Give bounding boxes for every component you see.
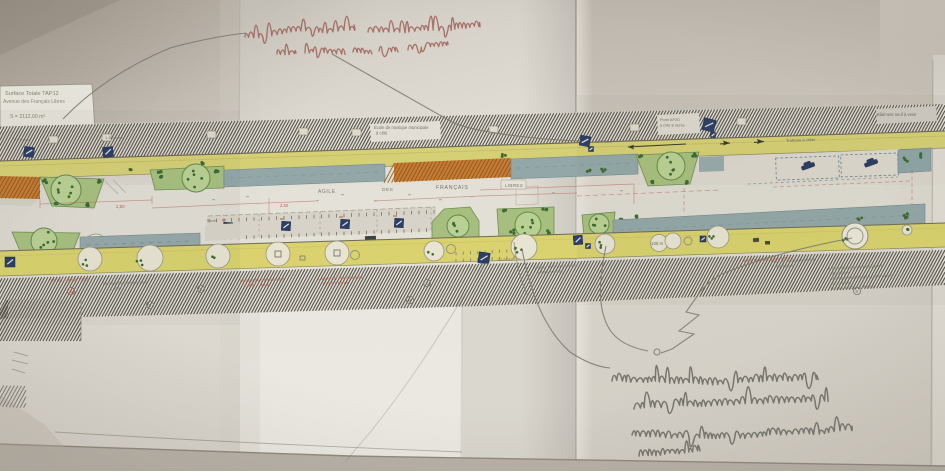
svg-text:2,50: 2,50: [280, 203, 289, 208]
svg-text:DES: DES: [382, 187, 393, 193]
svg-text:à côté: à côté: [376, 131, 388, 136]
svg-text:1,40m + retrait: 1,40m + retrait: [322, 280, 349, 286]
svg-text:1,4 PONT: 1,4 PONT: [497, 258, 515, 262]
svg-text:Avenue des Français Libres: Avenue des Français Libres: [3, 99, 65, 105]
svg-text:École de musique municipale: École de musique municipale: [374, 125, 429, 130]
svg-text:LIBRES: LIBRES: [505, 183, 523, 188]
svg-text:AGILE: AGILE: [318, 189, 336, 195]
svg-text:1,40m + retrait: 1,40m + retrait: [244, 282, 271, 288]
svg-text:FRANÇAIS: FRANÇAIS: [436, 185, 469, 191]
svg-text:Surface Totale TAP12: Surface Totale TAP12: [5, 91, 59, 97]
